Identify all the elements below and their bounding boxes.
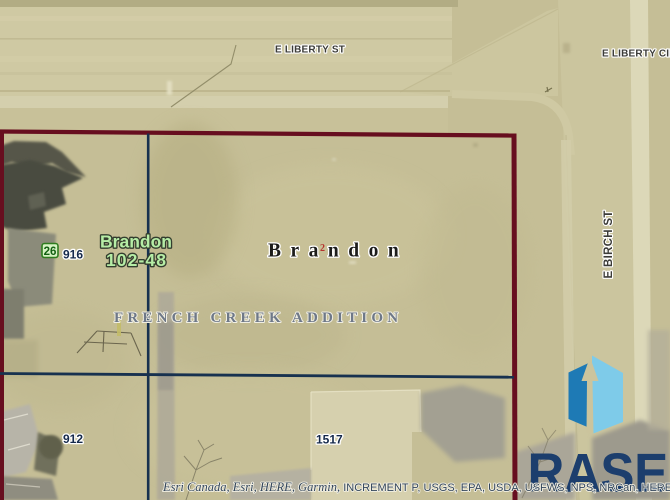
svg-text:E BIRCH ST: E BIRCH ST (603, 210, 615, 278)
svg-text:1517: 1517 (316, 433, 343, 447)
svg-text:E LIBERTY ST: E LIBERTY ST (275, 45, 345, 56)
svg-text:2: 2 (320, 243, 325, 254)
svg-text:Brandon: Brandon (100, 232, 172, 252)
svg-text:FRENCH CREEK ADDITION: FRENCH CREEK ADDITION (114, 310, 402, 326)
svg-text:Esri Canada, Esri, HERE, Garmi: Esri Canada, Esri, HERE, Garmin, INCREME… (162, 480, 670, 494)
svg-text:102-48: 102-48 (106, 250, 167, 270)
svg-text:Brandon: Brandon (268, 241, 408, 262)
svg-text:916: 916 (63, 248, 83, 262)
svg-text:26: 26 (44, 246, 57, 258)
svg-text:912: 912 (63, 432, 83, 446)
svg-text:E LIBERTY CIR: E LIBERTY CIR (602, 49, 670, 60)
